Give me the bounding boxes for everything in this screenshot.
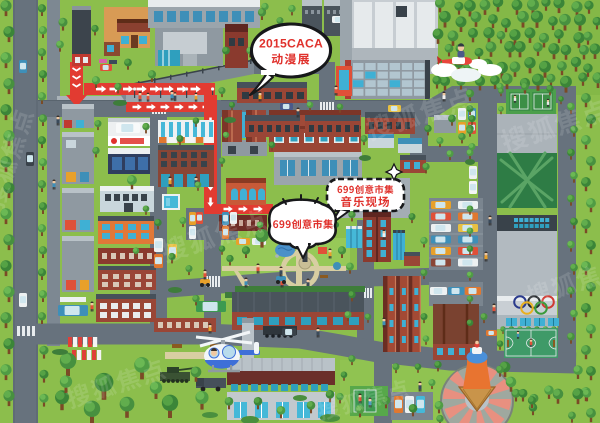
svg-text:2015CACA: 2015CACA — [259, 37, 323, 51]
